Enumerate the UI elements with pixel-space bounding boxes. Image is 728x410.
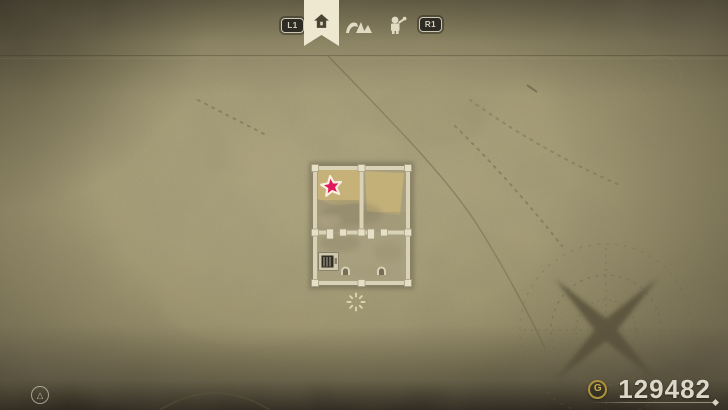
tab-machines[interactable] [386, 15, 408, 40]
shop-icon [319, 253, 339, 271]
machine-icon [386, 15, 408, 35]
map-screen: L1 [0, 0, 728, 410]
triangle-button-hint[interactable]: △ [31, 386, 49, 404]
l1-shoulder-button[interactable]: L1 [281, 18, 304, 33]
currency-value: 129482 [618, 374, 711, 405]
gold-coin-icon: G [588, 380, 607, 399]
triangle-icon: △ [37, 391, 44, 400]
tab-ruins[interactable] [345, 17, 375, 40]
currency-underline [589, 402, 716, 403]
r1-shoulder-button[interactable]: R1 [419, 17, 442, 32]
coin-letter: G [594, 384, 602, 394]
currency-display: G 129482 [588, 375, 711, 403]
map-viewport[interactable] [0, 0, 728, 410]
ruins-icon [345, 17, 375, 35]
house-icon [313, 13, 330, 29]
